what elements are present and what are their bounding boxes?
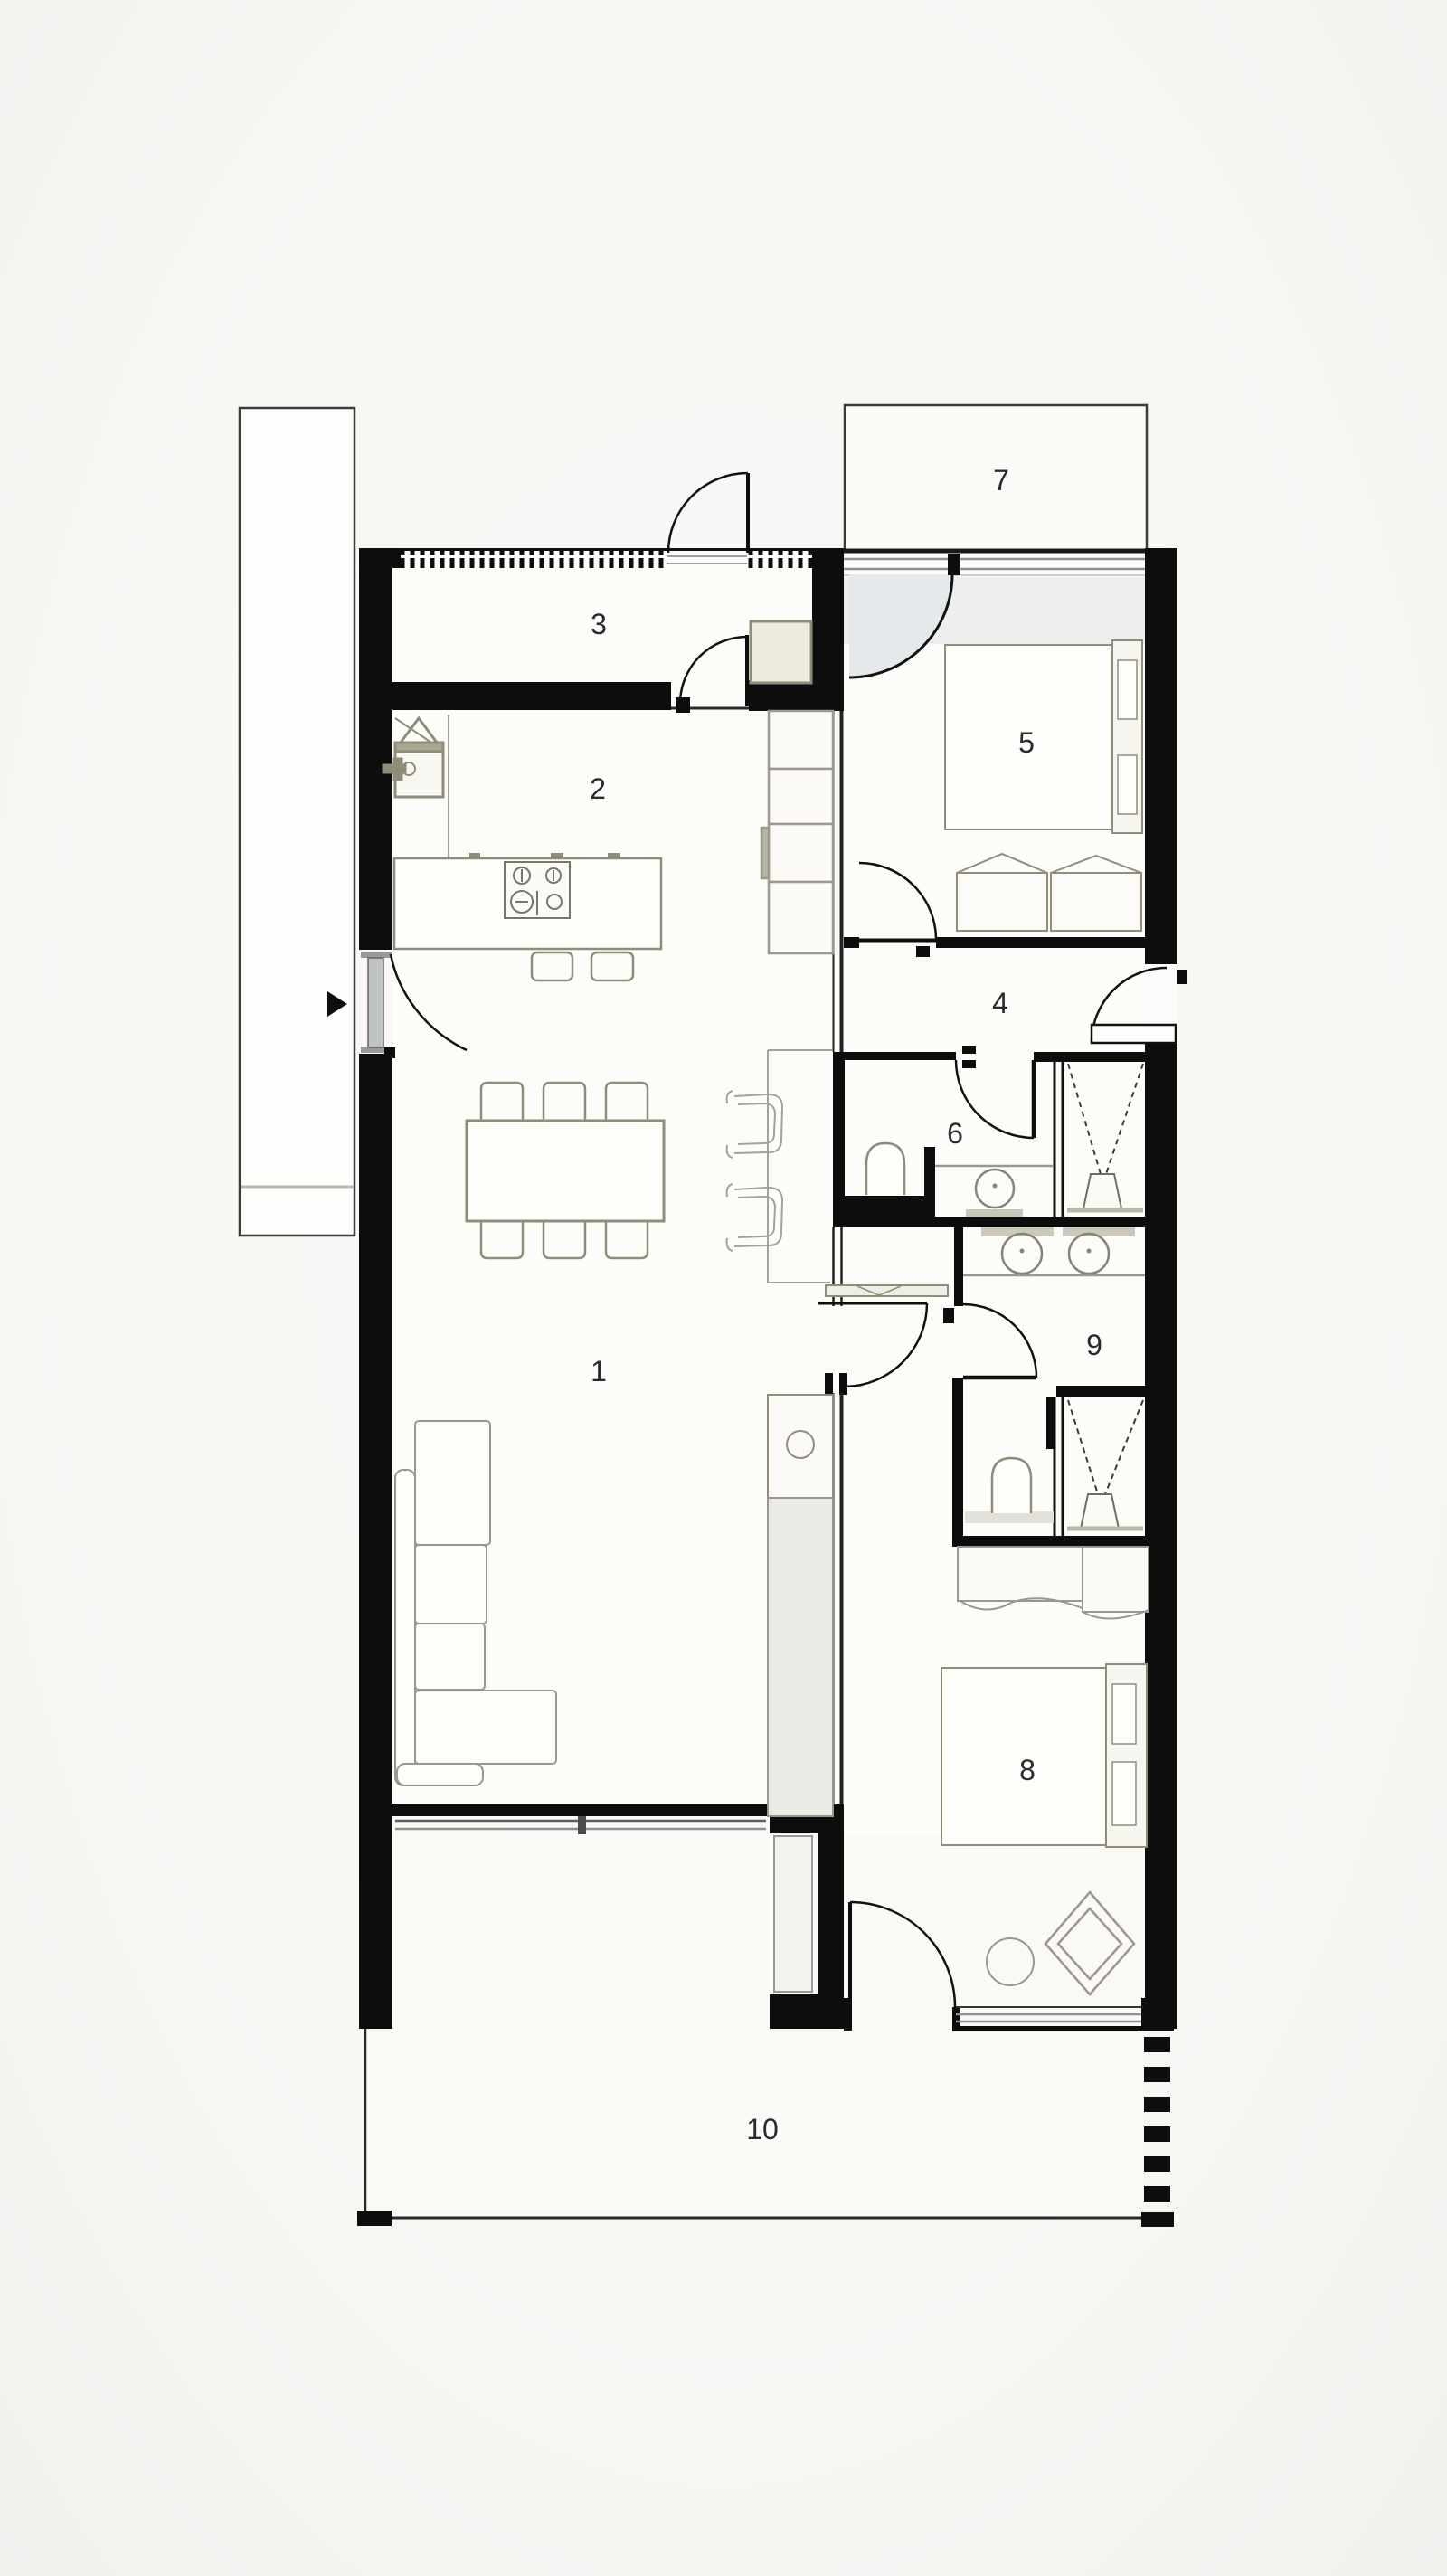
svg-text:6: 6 [947, 1117, 963, 1150]
svg-text:10: 10 [746, 2113, 779, 2145]
svg-text:7: 7 [993, 464, 1009, 497]
svg-text:5: 5 [1018, 726, 1035, 759]
svg-text:1: 1 [591, 1355, 607, 1387]
svg-text:2: 2 [590, 772, 606, 805]
svg-text:9: 9 [1086, 1329, 1102, 1361]
svg-text:3: 3 [591, 608, 607, 640]
svg-text:4: 4 [992, 987, 1008, 1019]
svg-text:8: 8 [1019, 1754, 1036, 1786]
